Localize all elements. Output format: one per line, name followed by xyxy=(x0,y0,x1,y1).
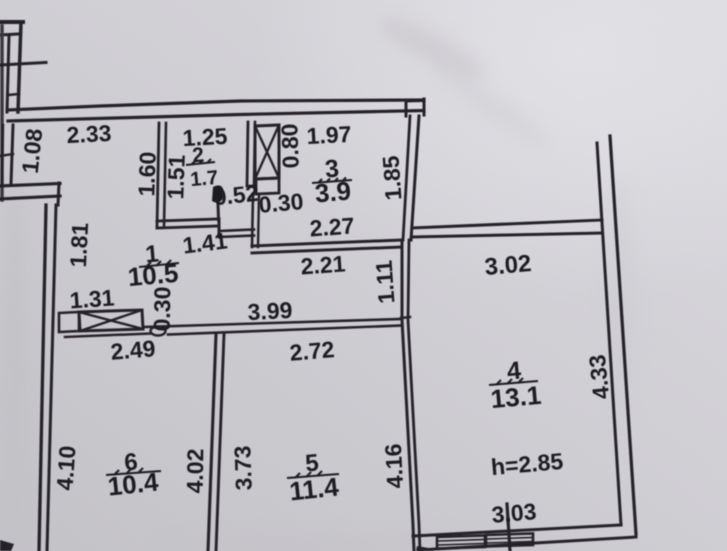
svg-text:1.11: 1.11 xyxy=(371,259,400,304)
svg-text:10.4: 10.4 xyxy=(106,466,160,501)
svg-text:3.73: 3.73 xyxy=(229,445,257,491)
svg-text:4.33: 4.33 xyxy=(584,353,615,400)
svg-text:13.1: 13.1 xyxy=(489,380,542,414)
svg-text:2.49: 2.49 xyxy=(110,335,157,365)
svg-text:1.31: 1.31 xyxy=(69,284,116,313)
svg-text:1.41: 1.41 xyxy=(181,227,229,258)
svg-text:0.80: 0.80 xyxy=(276,123,304,169)
svg-text:11.4: 11.4 xyxy=(288,471,341,506)
svg-text:4.02: 4.02 xyxy=(182,448,209,493)
svg-text:0.30: 0.30 xyxy=(149,286,176,331)
svg-text:3.99: 3.99 xyxy=(247,297,293,325)
svg-text:3.9: 3.9 xyxy=(314,175,353,208)
svg-text:2.21: 2.21 xyxy=(300,250,347,279)
svg-text:2.72: 2.72 xyxy=(289,336,336,366)
svg-text:3.02: 3.02 xyxy=(484,250,533,281)
svg-text:2.27: 2.27 xyxy=(309,212,355,241)
svg-text:4.10: 4.10 xyxy=(51,445,80,491)
svg-text:3.03: 3.03 xyxy=(491,498,538,528)
svg-text:1.85: 1.85 xyxy=(377,155,406,202)
svg-text:2.33: 2.33 xyxy=(66,120,112,148)
svg-text:1.51: 1.51 xyxy=(162,154,190,200)
svg-text:0.30: 0.30 xyxy=(258,188,305,218)
svg-text:1.60: 1.60 xyxy=(133,151,161,197)
svg-text:1.08: 1.08 xyxy=(17,127,48,174)
svg-text:1.81: 1.81 xyxy=(65,222,93,268)
svg-text:0.52: 0.52 xyxy=(212,180,259,211)
svg-text:4.16: 4.16 xyxy=(380,443,408,489)
svg-text:1.97: 1.97 xyxy=(306,121,352,149)
svg-text:1.25: 1.25 xyxy=(182,123,228,151)
